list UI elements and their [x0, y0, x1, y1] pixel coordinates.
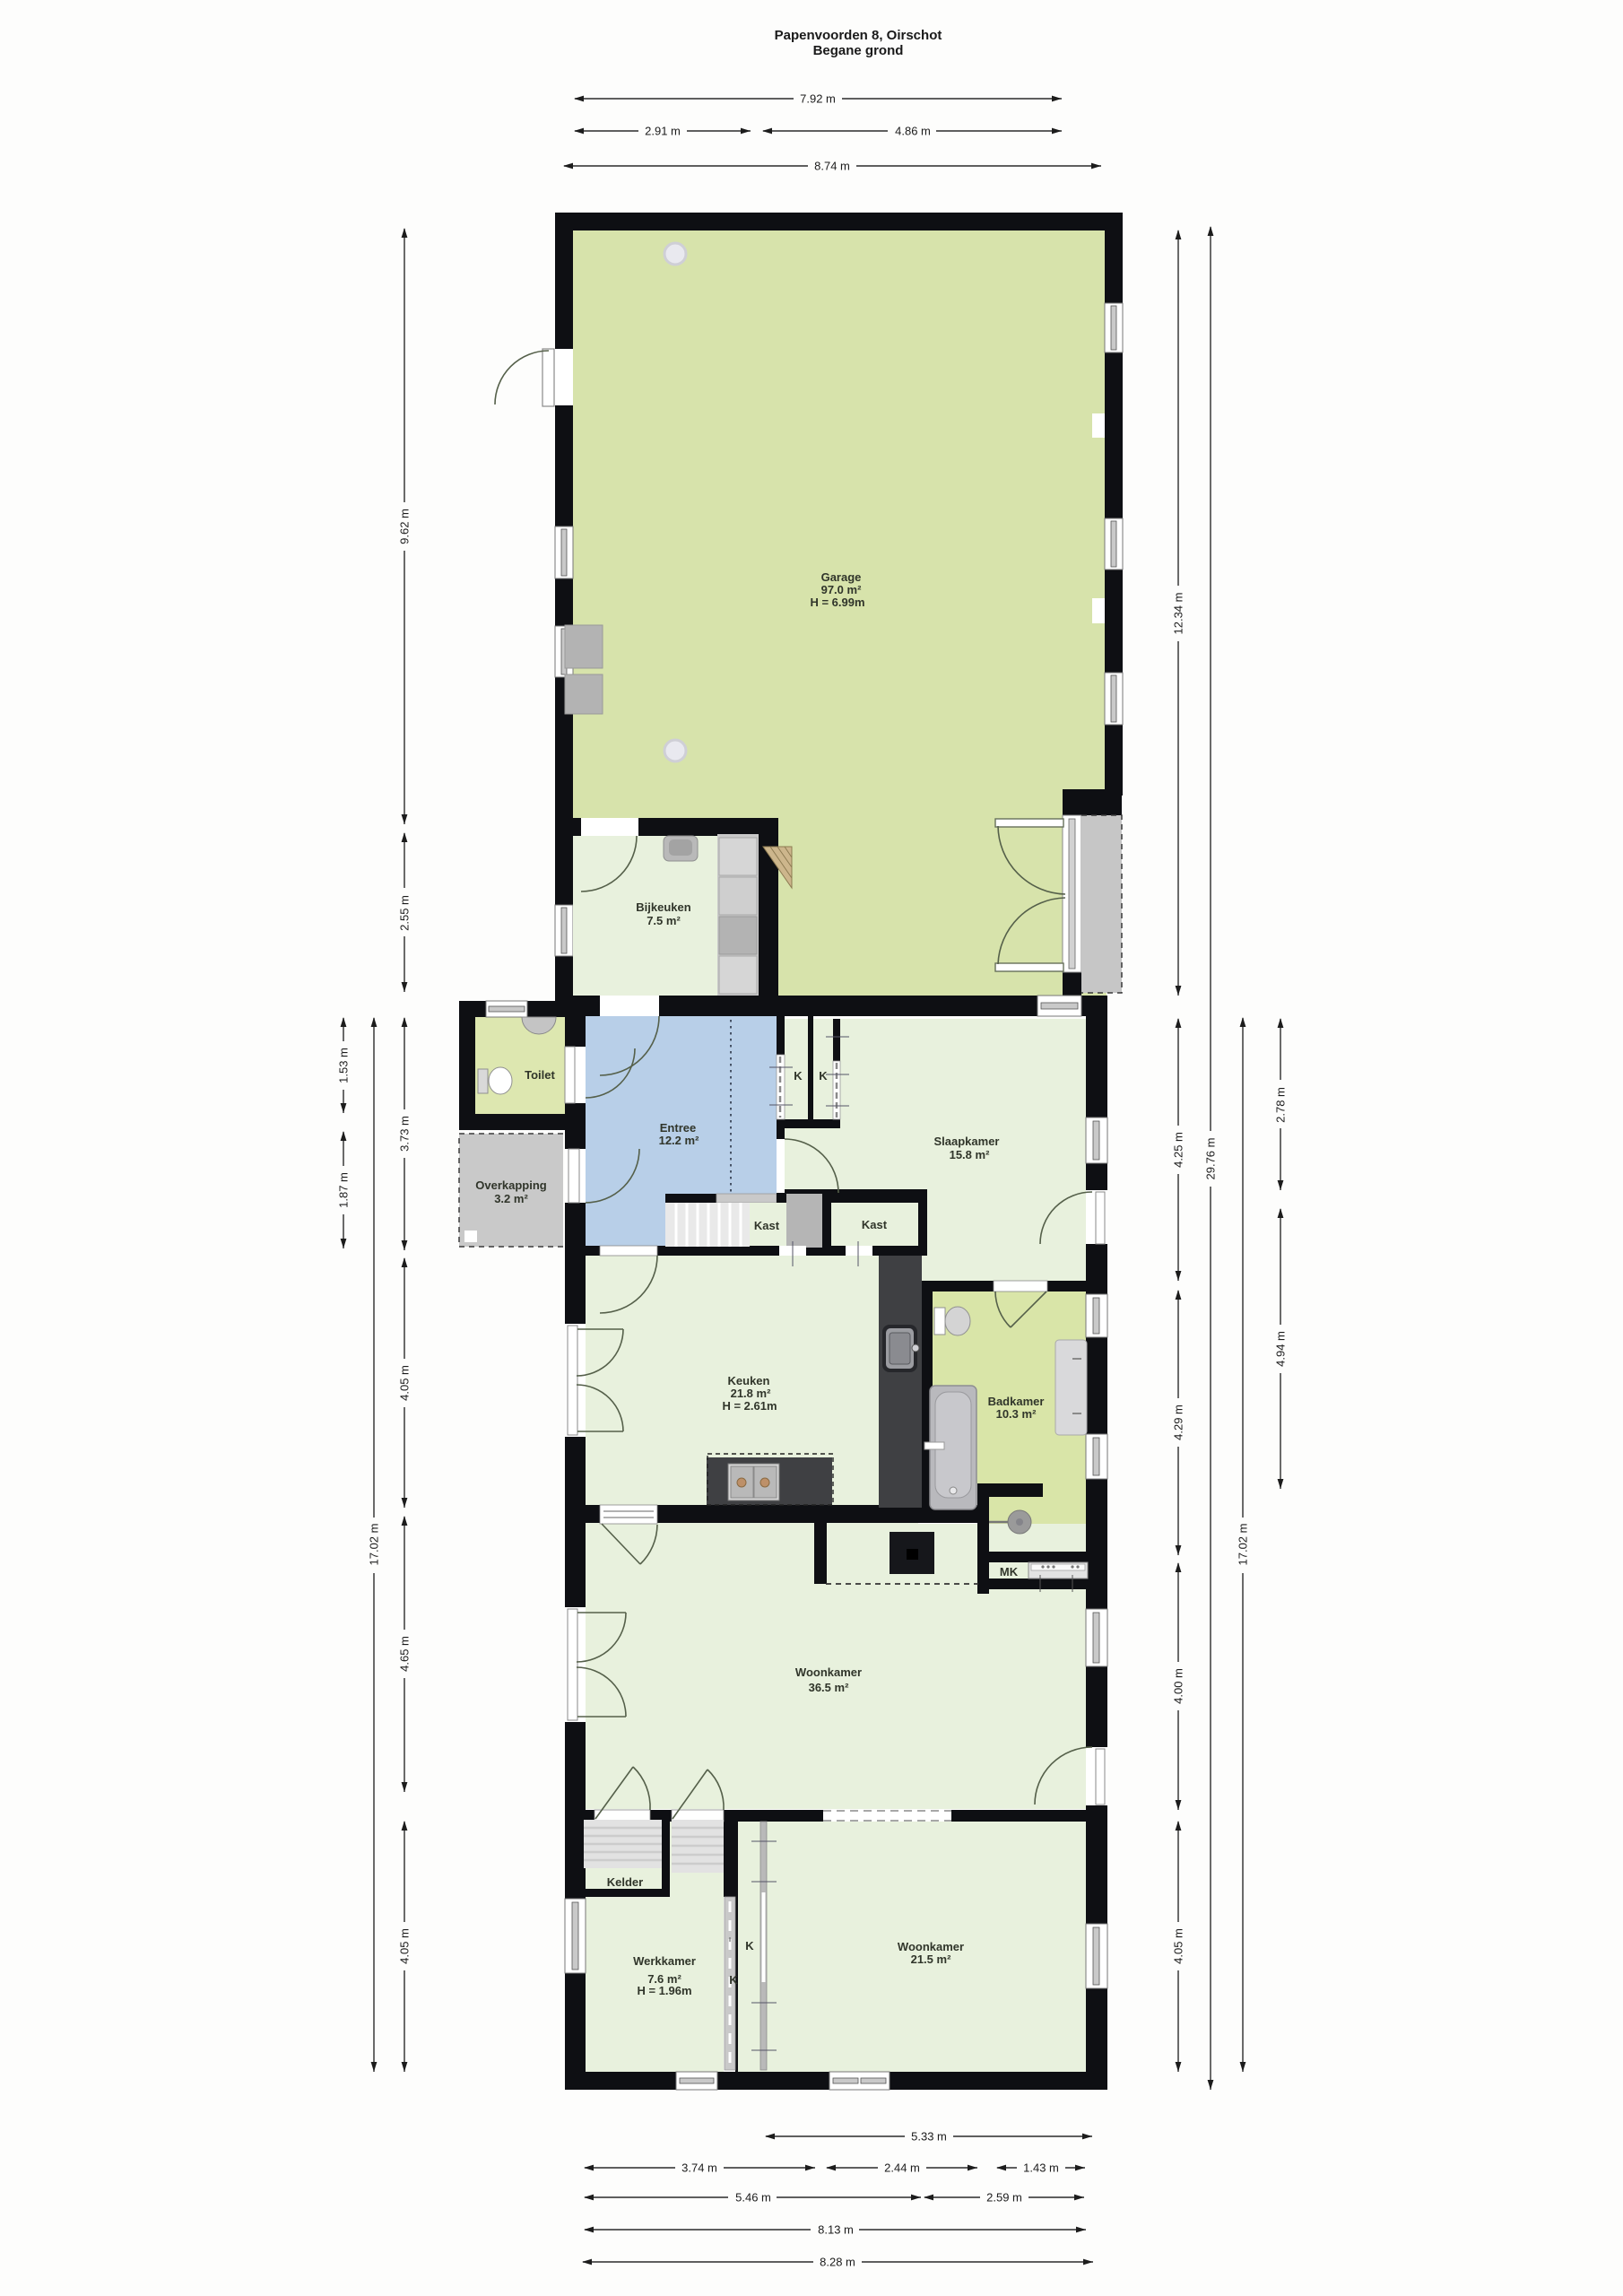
svg-text:12.34 m: 12.34 m [1172, 593, 1185, 635]
svg-text:4.86 m: 4.86 m [895, 125, 931, 138]
svg-text:4.05 m: 4.05 m [1172, 1928, 1185, 1964]
svg-text:Badkamer: Badkamer [988, 1395, 1045, 1408]
svg-text:1.53 m: 1.53 m [337, 1048, 351, 1083]
svg-text:4.25 m: 4.25 m [1172, 1132, 1185, 1168]
svg-text:4.29 m: 4.29 m [1172, 1405, 1185, 1440]
svg-text:2.59 m: 2.59 m [986, 2191, 1022, 2205]
svg-text:17.02 m: 17.02 m [1237, 1524, 1250, 1566]
svg-text:8.74 m: 8.74 m [814, 160, 850, 173]
svg-text:21.5 m²: 21.5 m² [911, 1952, 951, 1966]
svg-text:29.76 m: 29.76 m [1204, 1138, 1218, 1180]
svg-text:1.43 m: 1.43 m [1023, 2161, 1059, 2175]
svg-text:H = 1.96m: H = 1.96m [637, 1984, 691, 1997]
svg-text:4.65 m: 4.65 m [398, 1636, 412, 1672]
svg-text:Keuken: Keuken [728, 1374, 770, 1387]
svg-text:9.62 m: 9.62 m [398, 509, 412, 544]
svg-text:K: K [745, 1939, 754, 1952]
svg-text:2.78 m: 2.78 m [1274, 1087, 1288, 1123]
svg-text:Toilet: Toilet [525, 1068, 555, 1082]
svg-text:3.74 m: 3.74 m [681, 2161, 717, 2175]
svg-text:17.02 m: 17.02 m [368, 1524, 381, 1566]
svg-text:H = 6.99m: H = 6.99m [810, 596, 864, 609]
svg-text:4.05 m: 4.05 m [398, 1365, 412, 1401]
svg-text:8.28 m: 8.28 m [820, 2256, 855, 2269]
svg-text:H = 2.61m: H = 2.61m [722, 1399, 777, 1413]
svg-text:36.5 m²: 36.5 m² [809, 1681, 849, 1694]
svg-text:Overkapping: Overkapping [475, 1178, 547, 1192]
svg-text:12.2 m²: 12.2 m² [659, 1134, 699, 1147]
svg-text:MK: MK [1000, 1565, 1019, 1578]
svg-text:3.73 m: 3.73 m [398, 1116, 412, 1152]
svg-text:7.92 m: 7.92 m [800, 92, 836, 106]
svg-text:Woonkamer: Woonkamer [795, 1665, 862, 1679]
svg-text:K: K [819, 1069, 828, 1083]
svg-text:10.3 m²: 10.3 m² [996, 1407, 1037, 1421]
svg-text:Bijkeuken: Bijkeuken [636, 900, 690, 914]
svg-text:Entree: Entree [660, 1121, 696, 1135]
svg-text:2.44 m: 2.44 m [884, 2161, 920, 2175]
svg-text:K: K [729, 1973, 738, 1987]
svg-text:Kast: Kast [862, 1218, 888, 1231]
svg-text:4.94 m: 4.94 m [1274, 1331, 1288, 1367]
svg-text:4.00 m: 4.00 m [1172, 1668, 1185, 1704]
svg-text:Begane grond: Begane grond [813, 43, 904, 58]
svg-text:2.55 m: 2.55 m [398, 895, 412, 931]
svg-text:1.87 m: 1.87 m [337, 1172, 351, 1208]
svg-text:97.0 m²: 97.0 m² [821, 583, 862, 596]
svg-text:15.8 m²: 15.8 m² [950, 1148, 990, 1161]
svg-text:4.05 m: 4.05 m [398, 1928, 412, 1964]
svg-text:2.91 m: 2.91 m [645, 125, 681, 138]
svg-text:Slaapkamer: Slaapkamer [934, 1135, 1000, 1148]
svg-text:Woonkamer: Woonkamer [898, 1940, 964, 1953]
svg-text:Kelder: Kelder [607, 1875, 643, 1889]
svg-text:5.33 m: 5.33 m [911, 2130, 947, 2144]
svg-text:7.5 m²: 7.5 m² [647, 914, 681, 927]
svg-text:21.8 m²: 21.8 m² [731, 1387, 771, 1400]
svg-text:Papenvoorden 8, Oirschot: Papenvoorden 8, Oirschot [775, 28, 942, 43]
svg-text:Garage: Garage [821, 570, 862, 584]
svg-text:K: K [794, 1069, 803, 1083]
svg-text:3.2 m²: 3.2 m² [494, 1192, 528, 1205]
svg-text:5.46 m: 5.46 m [735, 2191, 771, 2205]
svg-text:Werkkamer: Werkkamer [633, 1954, 696, 1968]
svg-text:8.13 m: 8.13 m [818, 2223, 854, 2237]
svg-text:Kast: Kast [754, 1219, 780, 1232]
